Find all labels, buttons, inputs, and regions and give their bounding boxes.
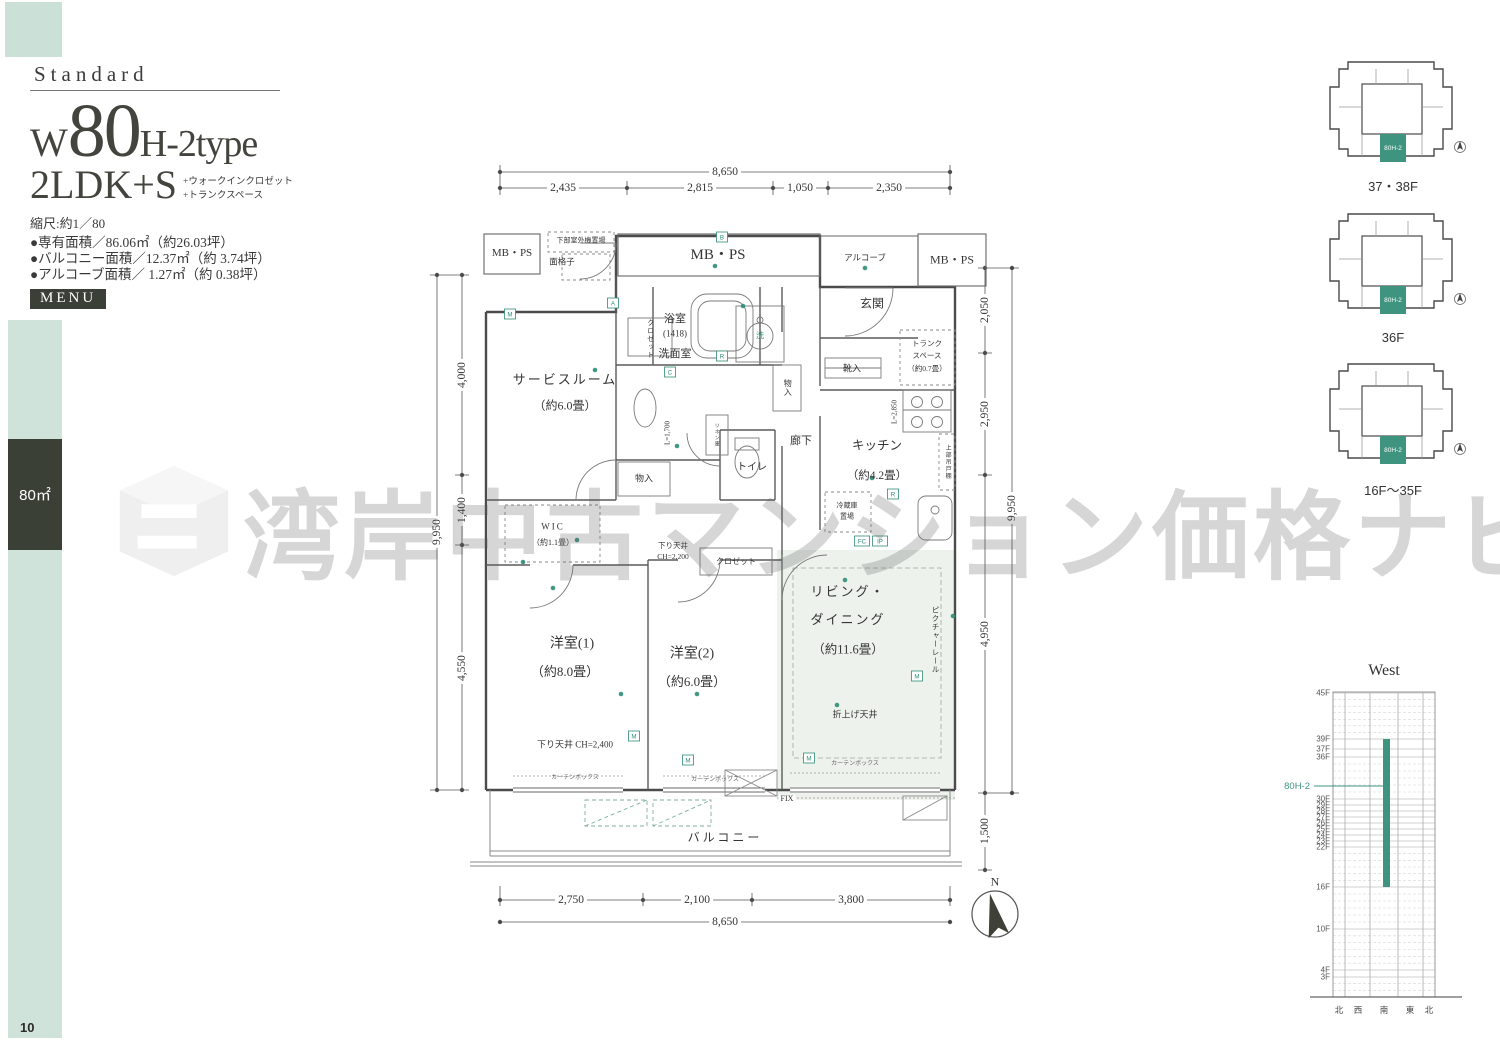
dim-bottom-total: 8,650: [709, 916, 741, 928]
dim-left-3: 4,550: [456, 652, 468, 684]
dim-top-1: 2,435: [547, 182, 579, 194]
dim-bottom-1: 2,750: [555, 894, 587, 906]
dim-top-total: 8,650: [709, 166, 741, 178]
room-label-balcony: バルコニー: [688, 832, 763, 845]
room-label-mbps-right: MB・PS: [930, 254, 974, 267]
floorplate-caption-2: 36F: [1318, 330, 1468, 345]
compass-north-label: N: [991, 876, 1000, 889]
title-block: Standard W 80 H-2type 2LDK+S +ウォークインクロゼッ…: [30, 62, 295, 309]
label-down-ceiling-2400: 下り天井 CH=2,400: [537, 740, 613, 749]
room-label-alcove: アルコーブ: [844, 254, 886, 263]
svg-text:M: M: [914, 673, 919, 680]
type-prefix: W: [30, 123, 68, 163]
room-label-washer: 洗: [756, 332, 764, 340]
room-label-bath: 浴室: [664, 314, 686, 326]
label-fix-window: FIX: [779, 795, 796, 803]
floorplate-caption-1: 37・38F: [1318, 176, 1468, 195]
area-line-exclusive: ●専有面積／86.06㎡（約26.03坪）: [30, 235, 295, 251]
room-label-mbps-left: MB・PS: [492, 248, 532, 260]
room-label-outdoor-unit: 下部室外機置場: [557, 237, 606, 244]
menu-button[interactable]: MENU: [30, 289, 106, 309]
svg-text:16F: 16F: [1316, 883, 1330, 892]
room-label-toilet: トイレ: [737, 463, 767, 474]
label-curtain-box-2: カーテンボックス: [691, 777, 739, 783]
svg-text:北: 北: [1425, 1005, 1434, 1015]
area-line-balcony: ●バルコニー面積／12.37㎡（約 3.74坪）: [30, 251, 295, 267]
room-label-bedroom2: 洋室(2): [670, 648, 714, 663]
floorplate-unit-label: 80H-2: [1384, 447, 1402, 454]
svg-text:80H-2: 80H-2: [1284, 781, 1310, 792]
svg-text:R: R: [720, 353, 725, 360]
svg-text:C: C: [668, 369, 673, 376]
north-compass: [972, 891, 1018, 938]
type-suffix: H-2type: [140, 125, 258, 163]
dim-right-1: 2,050: [979, 294, 991, 326]
dim-left-1: 4,000: [456, 359, 468, 391]
floorplate-16-35F: 80H-2: [1318, 358, 1468, 478]
type-number: 80: [68, 93, 140, 169]
room-label-living-1: リビング・: [810, 585, 885, 599]
unit-type-title: W 80 H-2type: [30, 93, 295, 169]
svg-text:M: M: [507, 311, 512, 318]
room-label-hanging-cupboard: 上部吊戸棚: [944, 445, 950, 480]
room-label-wic-size: （約1.1畳）: [532, 539, 574, 547]
room-label-wic: WIC: [541, 522, 565, 531]
dim-top-4: 2,350: [873, 182, 905, 194]
room-label-closet2: クロゼット: [716, 558, 756, 566]
area-line-alcove: ●アルコーブ面積／ 1.27㎡（約 0.38坪）: [30, 267, 295, 283]
svg-text:IP: IP: [877, 538, 883, 545]
room-label-mbps-center: MB・PS: [690, 248, 745, 264]
svg-text:36F: 36F: [1316, 753, 1330, 762]
svg-text:10F: 10F: [1316, 925, 1330, 934]
svg-text:45F: 45F: [1316, 689, 1330, 698]
label-l1700: L=1,700: [664, 421, 671, 445]
area-list: ●専有面積／86.06㎡（約26.03坪） ●バルコニー面積／12.37㎡（約 …: [30, 235, 295, 283]
room-label-linen: リネン庫: [713, 423, 718, 447]
room-label-coffered-ceiling: 折上げ天井: [832, 710, 877, 719]
dim-bottom-3: 3,800: [835, 894, 867, 906]
dim-top-3: 1,050: [784, 182, 816, 194]
room-label-lattice: 面格子: [549, 258, 575, 267]
room-label-monoire-hall: 物入: [783, 379, 791, 397]
svg-text:39F: 39F: [1316, 735, 1330, 744]
dim-right-total: 9,950: [1006, 492, 1018, 524]
room-label-bath-size: (1418): [663, 329, 687, 338]
label-down-ceiling-2200a: 下り天井: [658, 542, 688, 550]
room-label-picture-rail: ピクチャーレール: [931, 606, 939, 674]
room-label-trunk-1: トランク: [912, 340, 942, 348]
floorplate-unit-label: 80H-2: [1384, 297, 1402, 304]
room-label-service-size: （約6.0畳）: [533, 400, 596, 413]
svg-text:22F: 22F: [1316, 843, 1330, 852]
grade-label: Standard: [30, 62, 295, 87]
room-label-kitchen: キッチン: [852, 439, 902, 452]
svg-text:West: West: [1368, 662, 1400, 679]
room-label-bedroom1: 洋室(1): [550, 638, 594, 653]
page-number: 10: [20, 1020, 34, 1035]
svg-text:南: 南: [1380, 1005, 1389, 1015]
area-tab-label: 80㎡: [19, 484, 51, 505]
floorplate-36F: 80H-2: [1318, 208, 1468, 328]
room-label-monoire-left: 物入: [635, 474, 653, 483]
svg-text:東: 東: [1406, 1005, 1415, 1015]
dim-right-2: 2,950: [979, 398, 991, 430]
svg-text:M: M: [685, 757, 690, 764]
dim-bottom-2: 2,100: [681, 894, 713, 906]
svg-text:R: R: [891, 491, 896, 498]
svg-text:FC: FC: [858, 538, 867, 545]
svg-text:M: M: [806, 755, 811, 762]
dim-left-2: 1,400: [456, 494, 468, 526]
room-label-fridge-2: 置場: [840, 513, 854, 520]
dim-top-2: 2,815: [684, 182, 716, 194]
room-label-fridge-1: 冷蔵庫: [837, 502, 858, 509]
dim-right-3: 4,950: [979, 618, 991, 650]
floorplate-unit-label: 80H-2: [1384, 145, 1402, 152]
svg-text:M: M: [631, 733, 636, 740]
layout-note-1: +ウォークインクロゼット: [183, 177, 293, 187]
dim-left-total: 9,950: [431, 516, 443, 548]
label-down-ceiling-2200b: CH=2,200: [657, 553, 689, 561]
brochure-page: 80㎡ 10 Standard W 80 H-2type 2LDK+S +ウォー…: [0, 0, 1500, 1059]
sidebar-strip: [8, 320, 62, 1038]
room-label-washroom: 洗面室: [659, 349, 692, 361]
layout-note-2: +トランクスペース: [183, 191, 263, 201]
floorplate-37-38F: 80H-2: [1318, 56, 1468, 176]
room-label-kitchen-size: （約4.2畳）: [847, 470, 907, 482]
dim-right-4: 1,500: [979, 815, 991, 847]
floor-plan: BMACRFCIPRMMMM MB・PS 下部室外機置場 面格子 MB・PS ア…: [425, 148, 1065, 980]
room-label-service: サービスルーム: [513, 373, 618, 387]
svg-text:B: B: [720, 234, 724, 241]
room-label-corridor: 廊下: [790, 436, 812, 448]
room-label-trunk-2: スペース: [912, 352, 941, 360]
svg-text:西: 西: [1354, 1005, 1363, 1015]
room-label-living-2: ダイニング: [810, 613, 885, 627]
room-label-closet-top: クロゼット: [646, 319, 653, 355]
label-curtain-box-3: カーテンボックス: [831, 761, 879, 767]
label-curtain-box-1: カーテンボックス: [551, 775, 599, 781]
scale-note: 縮尺:約1／80: [30, 213, 295, 232]
floorplate-caption-3: 16F〜35F: [1318, 480, 1468, 499]
layout-title: 2LDK+S +ウォークインクロゼット +トランクスペース: [30, 165, 295, 205]
room-label-bedroom2-size: （約6.0畳）: [658, 675, 726, 689]
room-label-entrance: 玄関: [860, 298, 884, 311]
svg-text:3F: 3F: [1321, 973, 1330, 982]
sidebar-top-square: [5, 2, 62, 57]
room-label-trunk-size: （約0.7畳）: [907, 365, 946, 373]
room-label-shoes: 靴入: [843, 364, 861, 373]
room-label-bedroom1-size: （約8.0畳）: [531, 665, 599, 679]
room-label-living-size: （約11.6畳）: [812, 643, 883, 656]
west-elevation-chart: 45F39F37F36F30F29F28F27F26F25F24F23F22F1…: [1270, 655, 1500, 1055]
watermark-logo: [110, 460, 238, 580]
layout-label: 2LDK+S: [30, 165, 177, 205]
label-l2850: L=2,850: [891, 400, 898, 424]
svg-text:北: 北: [1335, 1005, 1344, 1015]
layout-notes: +ウォークインクロゼット +トランクスペース: [183, 175, 293, 204]
area-tab-badge: 80㎡: [8, 439, 62, 550]
